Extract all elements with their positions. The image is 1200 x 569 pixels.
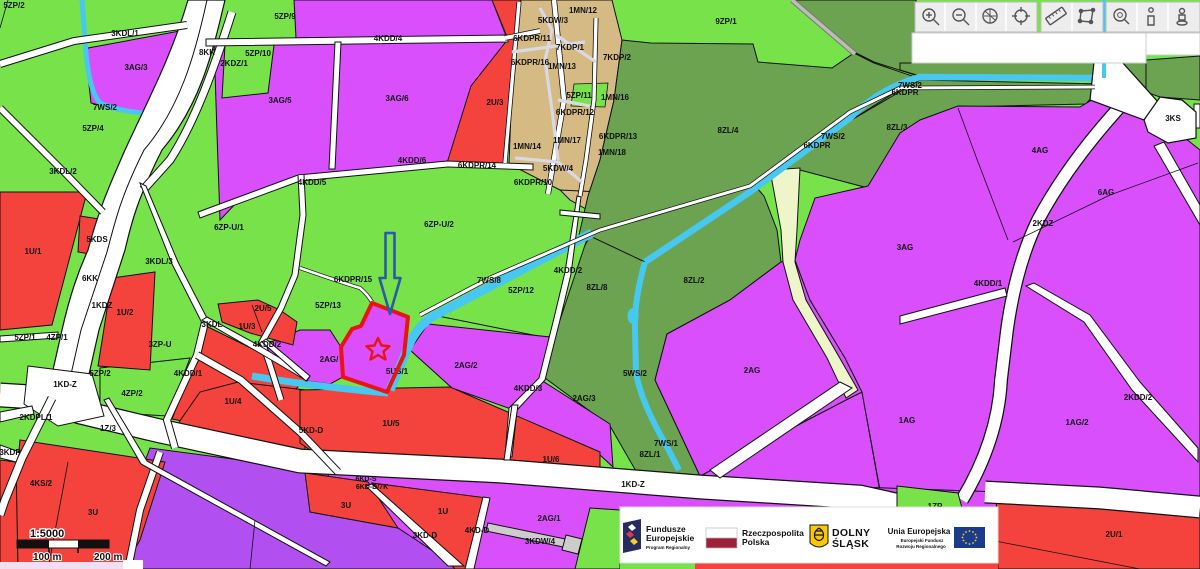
svg-text:8ZL/1: 8ZL/1: [640, 450, 661, 459]
svg-text:5ZP/13: 5ZP/13: [315, 301, 341, 310]
svg-text:3KDL/3: 3KDL/3: [145, 257, 173, 266]
svg-text:1Z/3: 1Z/3: [100, 424, 117, 433]
svg-text:5ZP/12: 5ZP/12: [508, 286, 534, 295]
svg-text:1U/3: 1U/3: [239, 322, 256, 331]
svg-text:3KDP: 3KDP: [0, 448, 21, 457]
svg-text:5ZP/2: 5ZP/2: [3, 1, 25, 10]
svg-text:6KDPR/15: 6KDPR/15: [334, 275, 373, 284]
svg-text:6KDPR: 6KDPR: [891, 88, 918, 97]
svg-text:4KDD/3: 4KDD/3: [514, 384, 543, 393]
svg-text:4ZP/2: 4ZP/2: [121, 389, 143, 398]
svg-text:6KD-S: 6KD-S: [355, 476, 376, 483]
svg-text:2AG/2: 2AG/2: [454, 361, 478, 370]
svg-text:1MN/14: 1MN/14: [513, 142, 542, 151]
svg-text:1AG/2: 1AG/2: [1065, 418, 1089, 427]
svg-text:Unia Europejska: Unia Europejska: [888, 527, 951, 536]
svg-text:6ZP-U/2: 6ZP-U/2: [424, 220, 454, 229]
svg-text:5KD-D: 5KD-D: [299, 426, 324, 435]
svg-text:ŚLĄSK: ŚLĄSK: [832, 537, 869, 550]
svg-text:1MN/12: 1MN/12: [569, 6, 598, 15]
svg-text:6KK: 6KK: [82, 274, 98, 283]
svg-text:7WS/8: 7WS/8: [477, 276, 502, 285]
svg-text:6KDPR/14: 6KDPR/14: [458, 161, 497, 170]
svg-text:7KDP/2: 7KDP/2: [603, 53, 632, 62]
svg-text:1U/1: 1U/1: [25, 247, 42, 256]
svg-text:3KDL/2: 3KDL/2: [49, 167, 77, 176]
svg-text:1KD-Z: 1KD-Z: [621, 480, 645, 489]
svg-text:1U/6: 1U/6: [543, 455, 560, 464]
svg-text:4AG: 4AG: [1032, 146, 1048, 155]
svg-text:1U/2: 1U/2: [117, 308, 134, 317]
svg-text:2KDPL/1: 2KDPL/1: [20, 413, 53, 422]
svg-text:8ZL/8: 8ZL/8: [587, 283, 608, 292]
svg-text:4KDD/2: 4KDD/2: [253, 340, 282, 349]
svg-text:100 m: 100 m: [33, 552, 61, 563]
svg-text:5KDS: 5KDS: [86, 235, 108, 244]
svg-text:8ZL/2: 8ZL/2: [684, 276, 705, 285]
svg-text:2U/5: 2U/5: [255, 304, 272, 313]
svg-text:6ZP-U/1: 6ZP-U/1: [214, 223, 244, 232]
svg-text:5ZP/4: 5ZP/4: [82, 124, 104, 133]
svg-text:4ZP/1: 4ZP/1: [46, 333, 68, 342]
svg-text:2KDD/2: 2KDD/2: [1124, 393, 1153, 402]
svg-text:2AG/3: 2AG/3: [572, 394, 596, 403]
svg-text:5ZP/11: 5ZP/11: [566, 91, 592, 100]
svg-text:1MN/18: 1MN/18: [598, 148, 627, 157]
svg-text:5ZP/10: 5ZP/10: [245, 49, 271, 58]
svg-text:6KDPR: 6KDPR: [803, 141, 830, 150]
svg-text:3AG/3: 3AG/3: [124, 63, 148, 72]
svg-text:1KDZ: 1KDZ: [92, 301, 113, 310]
svg-text:6KDPR/10: 6KDPR/10: [514, 178, 553, 187]
svg-text:4KD-D: 4KD-D: [465, 526, 490, 535]
svg-text:3KD-D: 3KD-D: [413, 531, 438, 540]
svg-text:4KDD/4: 4KDD/4: [374, 34, 403, 43]
svg-text:2KDZ: 2KDZ: [1033, 219, 1054, 228]
svg-text:2U/1: 2U/1: [1106, 530, 1123, 539]
svg-text:4KDD/1: 4KDD/1: [174, 369, 203, 378]
svg-text:4KDD/1: 4KDD/1: [974, 279, 1003, 288]
svg-text:7WS/2: 7WS/2: [93, 103, 118, 112]
svg-text:2KDZ/1: 2KDZ/1: [220, 59, 248, 68]
svg-text:3AG/5: 3AG/5: [268, 96, 292, 105]
svg-text:2AG/1: 2AG/1: [537, 514, 561, 523]
svg-text:Europejski Fundusz: Europejski Fundusz: [901, 538, 945, 543]
svg-text:1U/5: 1U/5: [383, 419, 400, 428]
svg-text:2AG/: 2AG/: [320, 355, 339, 364]
svg-text:5ZP/9: 5ZP/9: [274, 12, 296, 21]
svg-text:7WS/2: 7WS/2: [821, 132, 846, 141]
svg-text:3U: 3U: [341, 501, 351, 510]
svg-text:3KDW/4: 3KDW/4: [525, 537, 556, 546]
svg-text:5ZP/2: 5ZP/2: [89, 369, 111, 378]
svg-text:3KDL: 3KDL: [202, 320, 223, 329]
svg-text:4KDD/2: 4KDD/2: [554, 266, 583, 275]
svg-text:3KS: 3KS: [1165, 114, 1181, 123]
svg-text:1MN/13: 1MN/13: [548, 62, 577, 71]
svg-text:Polska: Polska: [742, 537, 770, 547]
svg-text:6KDPR/16: 6KDPR/16: [511, 58, 550, 67]
svg-text:Program Regionalny: Program Regionalny: [646, 545, 691, 550]
svg-text:5WS/2: 5WS/2: [623, 369, 648, 378]
svg-text:6KDPR/13: 6KDPR/13: [599, 132, 638, 141]
svg-text:3U: 3U: [88, 508, 98, 517]
svg-text:2U/3: 2U/3: [487, 98, 504, 107]
svg-text:1MN/17: 1MN/17: [553, 136, 582, 145]
svg-text:5KDW/4: 5KDW/4: [543, 164, 574, 173]
svg-text:200 m: 200 m: [94, 552, 122, 563]
svg-text:5KDW/3: 5KDW/3: [538, 16, 569, 25]
svg-text:1AG: 1AG: [899, 416, 915, 425]
svg-text:3AG: 3AG: [897, 243, 913, 252]
svg-text:7KDP/1: 7KDP/1: [556, 43, 585, 52]
svg-text:Europejskie: Europejskie: [646, 533, 694, 543]
svg-text:3ZP-U: 3ZP-U: [148, 340, 171, 349]
svg-text:5ZP/1: 5ZP/1: [14, 333, 36, 342]
svg-text:Rozwoju Regionalnego: Rozwoju Regionalnego: [896, 544, 946, 549]
svg-text:8ZL/3: 8ZL/3: [887, 123, 908, 132]
svg-text:8KK: 8KK: [199, 48, 215, 57]
svg-text:4KDD/5: 4KDD/5: [298, 178, 327, 187]
svg-text:3AG/6: 3AG/6: [385, 94, 409, 103]
svg-text:7WS/1: 7WS/1: [654, 439, 679, 448]
svg-text:1U: 1U: [438, 507, 448, 516]
svg-text:1MN/16: 1MN/16: [601, 93, 630, 102]
svg-text:3KDL/1: 3KDL/1: [111, 29, 139, 38]
svg-text:1:5000: 1:5000: [30, 528, 64, 540]
svg-text:6AG: 6AG: [1098, 188, 1114, 197]
svg-text:9ZP/1: 9ZP/1: [715, 17, 737, 26]
svg-text:2AG: 2AG: [744, 366, 760, 375]
svg-text:1U/4: 1U/4: [225, 397, 242, 406]
svg-text:6KD-D/7K: 6KD-D/7K: [356, 484, 388, 491]
svg-text:6KDPR/12: 6KDPR/12: [556, 108, 595, 117]
svg-text:4KDD/6: 4KDD/6: [398, 156, 427, 165]
svg-text:4KS/2: 4KS/2: [30, 479, 53, 488]
svg-text:1KD-Z: 1KD-Z: [53, 380, 77, 389]
svg-text:6KDPR/11: 6KDPR/11: [513, 34, 551, 43]
svg-text:8ZL/4: 8ZL/4: [718, 126, 739, 135]
